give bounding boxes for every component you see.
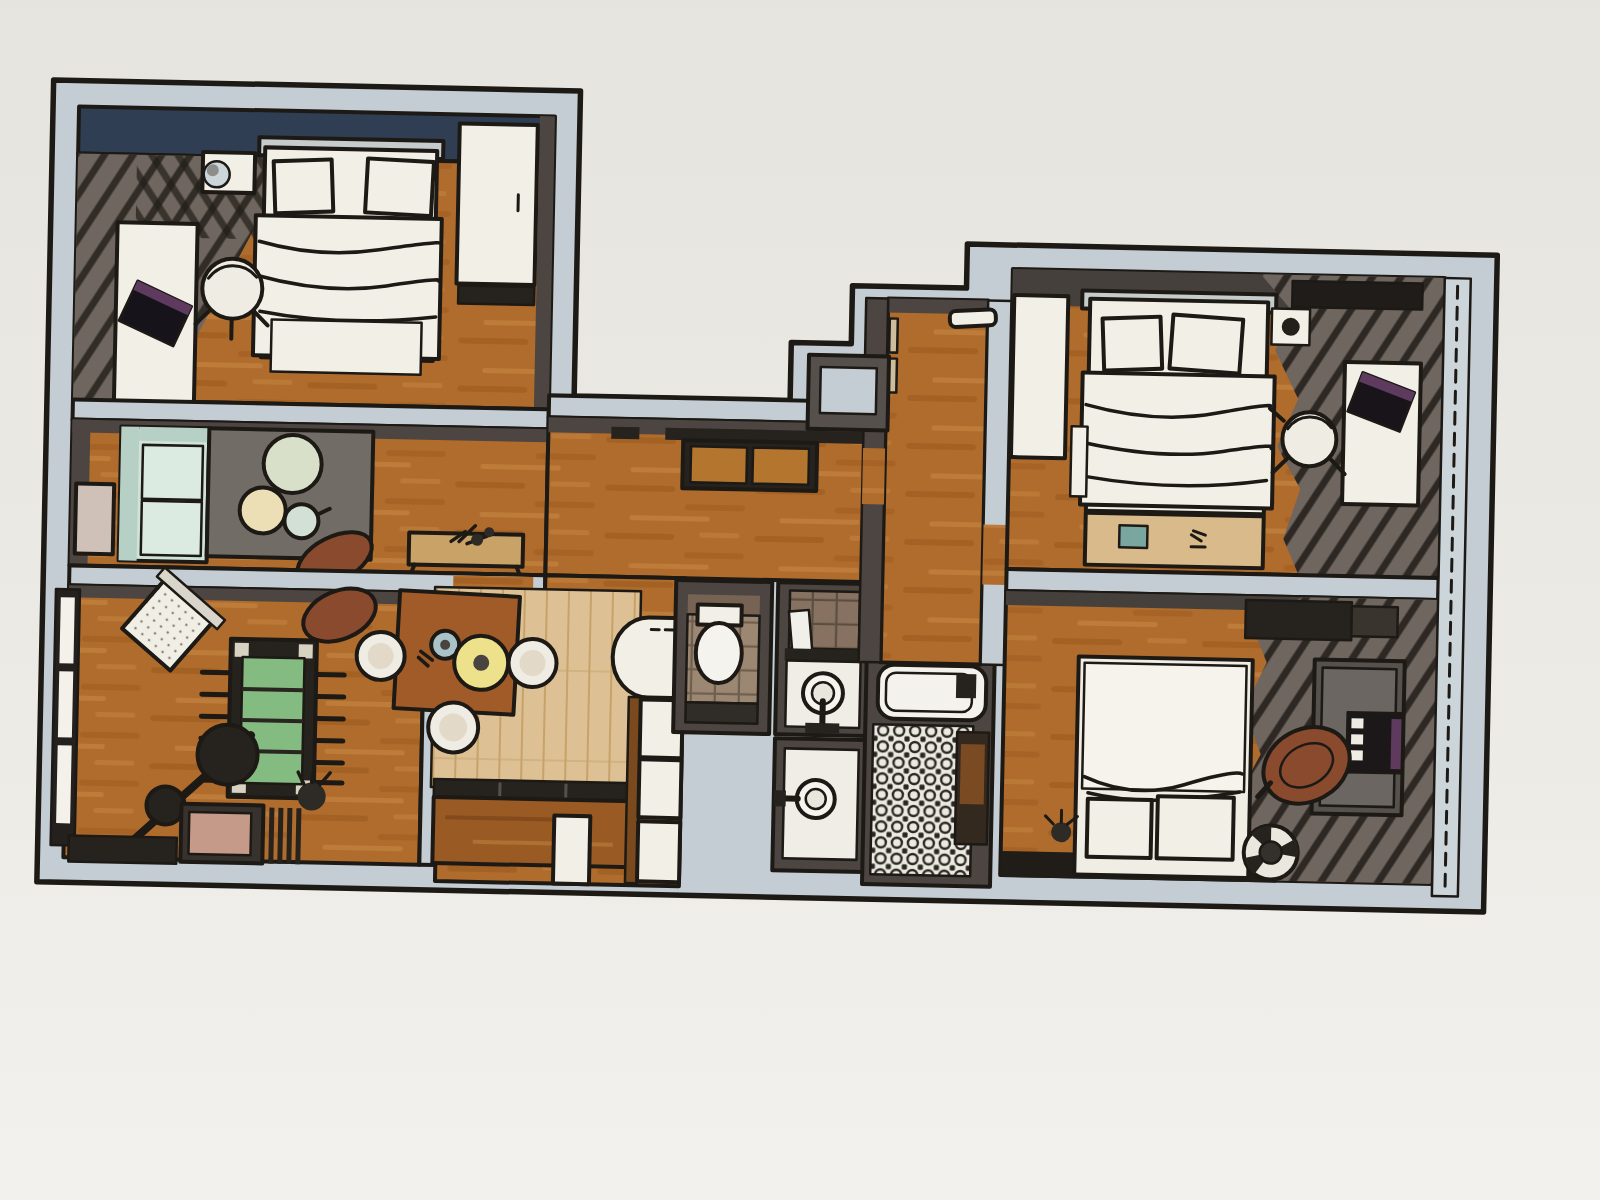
double-bed: [1070, 290, 1277, 514]
pillow: [274, 159, 334, 213]
wall-hook: [611, 427, 639, 440]
game-room: [50, 565, 441, 869]
duvet: [1082, 663, 1247, 792]
bedroom-right-bottom: [1000, 591, 1438, 886]
foot-sheet: [271, 320, 422, 375]
dark-wardrobe: [1245, 600, 1352, 640]
dark-wall-shelf: [1292, 281, 1423, 310]
desk: [114, 222, 198, 414]
pillow: [1103, 317, 1163, 371]
duvet: [1080, 373, 1275, 509]
entry-door-frame: [889, 318, 898, 352]
wall-shelf: [949, 309, 996, 327]
side-sheet: [1070, 426, 1087, 496]
pillow: [1087, 799, 1152, 858]
double-bed: [1074, 657, 1253, 879]
white-door: [553, 816, 590, 885]
round-coffee-table-small: [284, 504, 319, 539]
bathroom: [862, 654, 995, 887]
toilet: [695, 604, 743, 683]
washroom-upper: [775, 582, 870, 736]
wardrobe: [1011, 295, 1068, 458]
apartment-plan: [37, 80, 1500, 912]
tub-faucet: [956, 674, 976, 698]
round-coffee-table-large: [263, 434, 322, 493]
washroom-lower: [772, 738, 867, 872]
photo-frame: [1119, 525, 1147, 548]
round-coffee-table-cream: [239, 487, 286, 534]
bathtub: [877, 664, 986, 720]
wood-cabinet: [955, 732, 989, 845]
bedroom-right-top: [1007, 269, 1445, 578]
dining-table-group: [394, 590, 520, 715]
wc: [673, 580, 772, 734]
nightstand-with-lamp: [202, 152, 255, 193]
bedroom-top-left: [73, 106, 555, 421]
pillow: [1169, 315, 1243, 374]
mint-sofa: [119, 426, 210, 562]
tall-windows: [51, 589, 80, 845]
tub-chair: [356, 631, 405, 680]
service-duct: [807, 355, 889, 431]
pillow: [1157, 796, 1234, 860]
wardrobe: [456, 123, 538, 305]
low-bench-with-photo: [1085, 513, 1264, 569]
small-window: [75, 483, 114, 554]
east-door-opening: [982, 524, 1007, 584]
striped-pouf: [1243, 825, 1299, 880]
amp-cabinet: [180, 804, 263, 864]
west-door-opening: [862, 448, 885, 504]
storage-box: [1351, 606, 1398, 637]
desk: [1342, 362, 1421, 506]
tub-chair: [508, 639, 557, 688]
nightstand: [1271, 308, 1310, 345]
floor-plan-photo: [0, 0, 1600, 1200]
pillow: [365, 158, 434, 216]
double-bed: [253, 137, 444, 375]
round-sink: [802, 673, 843, 734]
wc-vanity: [685, 702, 757, 724]
tub-chair: [428, 702, 479, 753]
low-dark-bench: [68, 835, 177, 863]
banquette: [432, 779, 636, 867]
